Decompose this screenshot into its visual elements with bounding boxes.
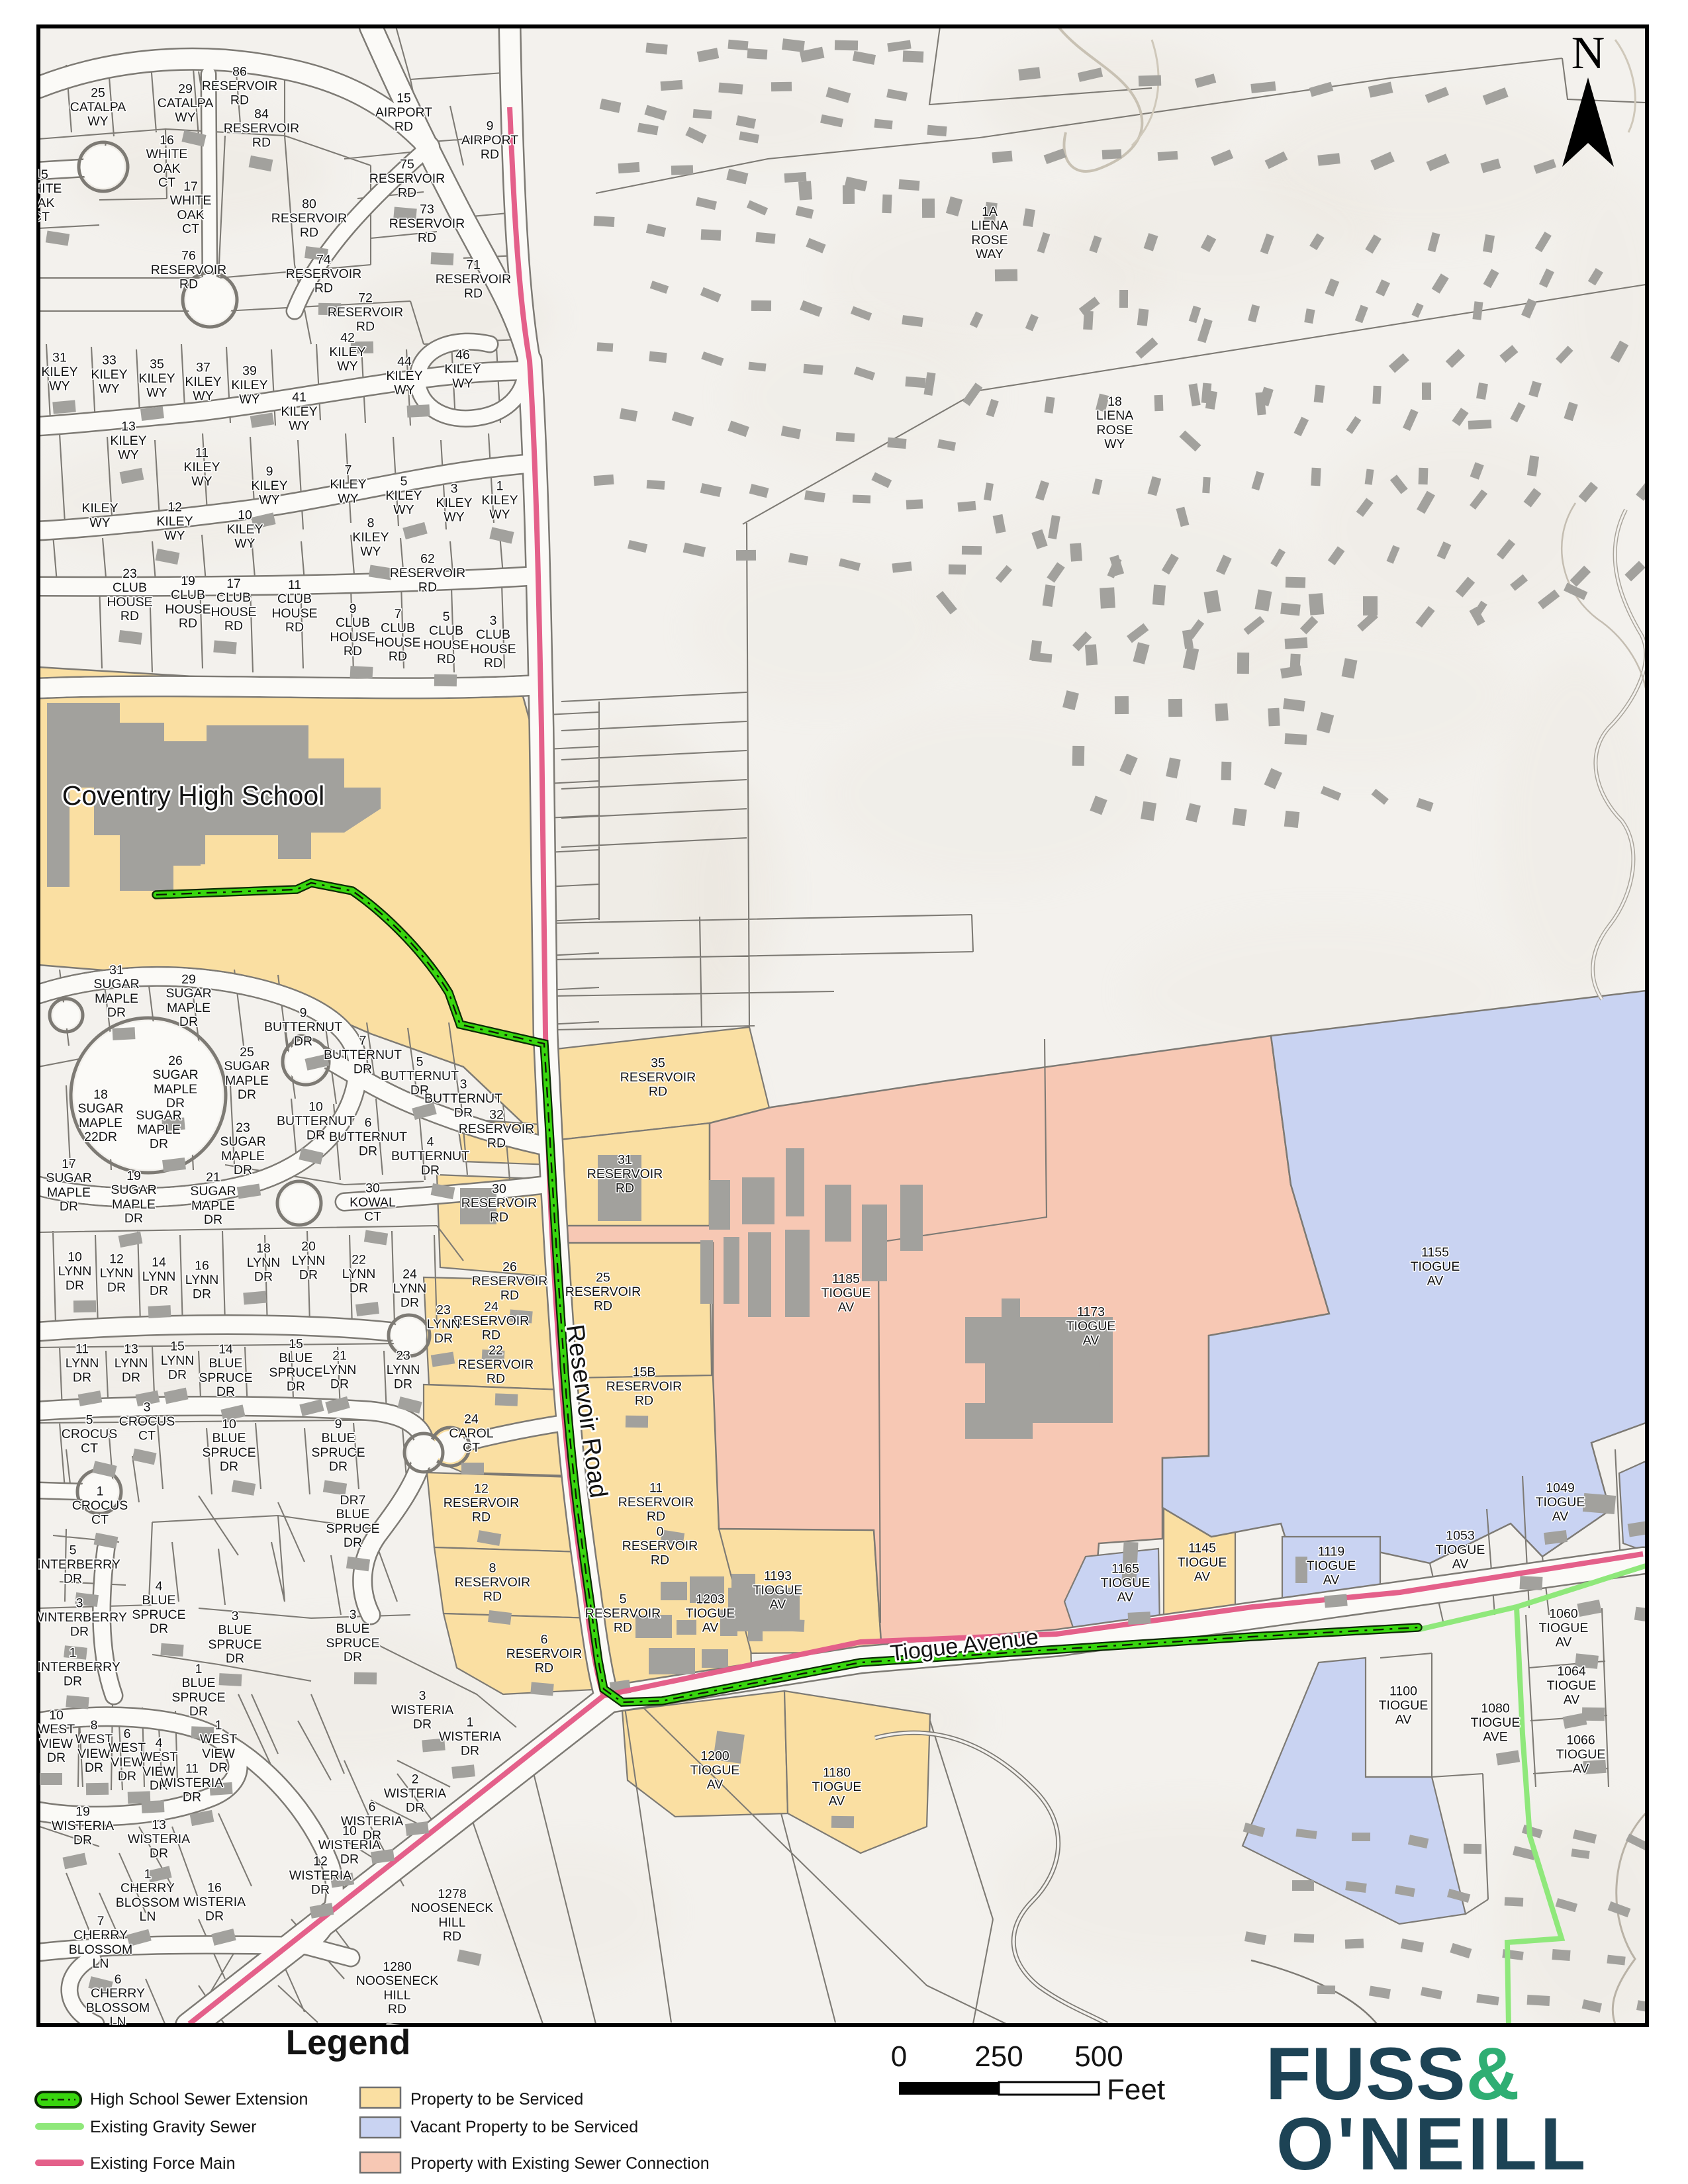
svg-text:O'NEILL: O'NEILL: [1276, 2103, 1589, 2184]
svg-text:Legend: Legend: [286, 2023, 410, 2062]
svg-text:500: 500: [1074, 2040, 1123, 2073]
svg-text:N: N: [1571, 28, 1605, 79]
svg-text:Vacant Property to be Serviced: Vacant Property to be Serviced: [410, 2118, 638, 2136]
svg-text:0: 0: [891, 2040, 907, 2073]
svg-text:Property to be Serviced: Property to be Serviced: [410, 2090, 583, 2109]
svg-text:Coventry High School: Coventry High School: [62, 780, 325, 811]
svg-text:Property with Existing Sewer C: Property with Existing Sewer Connection: [410, 2154, 710, 2173]
svg-text:High School Sewer Extension: High School Sewer Extension: [90, 2090, 308, 2109]
svg-text:Feet: Feet: [1107, 2073, 1165, 2106]
svg-text:Existing Gravity Sewer: Existing Gravity Sewer: [90, 2118, 256, 2136]
svg-text:Existing Force Main: Existing Force Main: [90, 2154, 236, 2173]
svg-text:250: 250: [974, 2040, 1023, 2073]
